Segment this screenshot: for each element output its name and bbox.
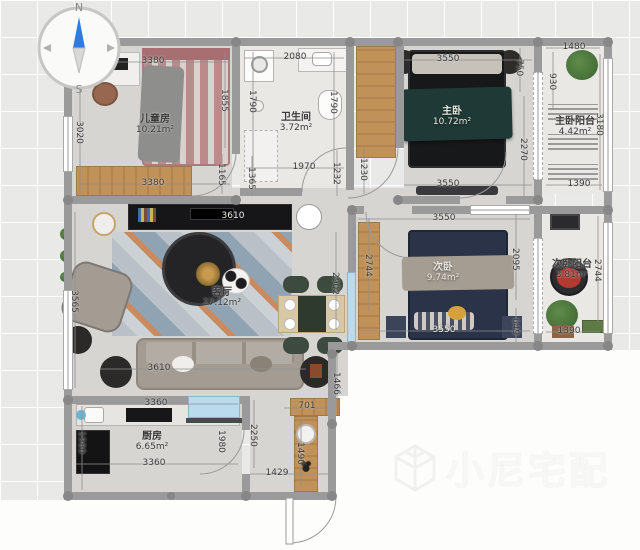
canvas-blank-bottom [0,500,640,550]
wall-kitchen-right-b[interactable] [242,474,250,500]
room-label-second-balcony: 次卧阳台 3.81m² [542,255,602,280]
sofa-cushions [146,342,294,364]
dim-master-nook: 750 [514,48,524,88]
dim-second-gap: 649 [510,307,520,347]
table-runner [298,296,326,332]
dim-children-right: 1855 [219,80,229,120]
dim-kitchen-right: 1980 [216,421,226,461]
room-label-living: 客厅 27.12m² [182,283,262,308]
room-label-master: 主卧 10.72m² [412,102,492,127]
dim-master-bottom: 3550 [429,179,467,190]
dim-entry-width: 1429 [258,468,296,479]
dim-kitchen-bottom: 3360 [135,458,173,469]
dim-second-top: 3550 [425,213,463,224]
dim-bath-bottom: 1970 [285,162,323,173]
dim-children-bottom: 3380 [134,178,172,189]
dim-shoe-top: 701 [288,401,326,412]
compass-north-label: N [34,1,124,14]
glass-door-track [186,418,244,423]
dim-children-left: 3020 [74,112,84,152]
wall-bottom-left[interactable] [64,492,336,500]
room-label-bathroom: 卫生间 3.72m² [256,108,336,133]
balcony-plant[interactable] [566,50,598,80]
drying-rack[interactable] [548,164,598,180]
sink [312,52,332,66]
watermark: 小尼宅配 [392,440,610,495]
picture-frame[interactable] [550,214,580,230]
floorplan-canvas[interactable]: 小尼宅配 [0,0,640,550]
dim-hall-bottom: 1466 [331,363,341,403]
dim-mbalcony-left: 930 [547,62,557,102]
wall-children-bottom[interactable] [64,196,240,204]
dining-chair[interactable] [283,337,309,354]
dim-shoe-side: 1490 [295,433,305,473]
plate [284,318,296,330]
throw-pillow [448,306,466,320]
dim-dining-side: 2902 [330,263,340,303]
side-table-tray [310,364,322,378]
compass-widget[interactable]: N S [34,3,124,93]
dim-children-door: 1165 [216,154,226,194]
wall-bottom-right[interactable] [328,342,612,350]
dim-hall-left: 1365 [246,158,256,198]
dim-second-bottom: 3550 [425,325,463,336]
wall-top[interactable] [64,38,612,46]
plate [328,318,340,330]
dining-chair[interactable] [283,276,309,293]
tv-books [138,208,156,222]
dim-tv-wall: 3610 [214,211,252,222]
dim-master-right: 2270 [518,129,528,169]
watermark-cube-icon [392,443,438,493]
washer-drum [251,56,268,73]
room-label-second: 次卧 9.74m² [403,258,483,283]
cooktop [126,408,172,422]
plate [284,299,296,311]
dim-hall-right: 1232 [331,153,341,193]
dim-mbalcony-top: 1480 [555,42,593,53]
dim-second-left: 2744 [363,245,373,285]
compass-dial [34,3,124,93]
wall-master-left[interactable] [396,38,404,148]
glass-partition[interactable] [347,272,356,342]
compass-south-label: S [34,83,124,96]
room-label-kitchen: 厨房 6.65m² [112,427,192,452]
side-table[interactable] [100,356,132,388]
wall-children-bath[interactable] [232,38,240,154]
dim-second-right: 2095 [510,239,520,279]
speaker[interactable] [296,204,322,230]
watermark-text: 小尼宅配 [446,440,610,495]
dim-living-left: 3565 [69,281,79,321]
window[interactable] [63,116,73,172]
wall-left[interactable] [64,38,72,500]
dim-mbalcony-bottom: 1390 [560,179,598,190]
dim-master-top: 3550 [429,54,467,65]
kitchen-glass-door[interactable] [188,396,240,418]
dim-master-door: 1230 [358,149,368,189]
dim-entry-height: 2250 [248,415,258,455]
dim-kitchen-top: 3360 [137,398,175,409]
sink-bowl [76,410,86,420]
window-second-top[interactable] [470,205,530,215]
hall-wardrobe[interactable] [356,46,396,158]
sliding-door-master-balcony[interactable] [533,72,543,180]
dim-bath-top: 2080 [276,52,314,63]
sliding-door-second-balcony[interactable] [533,238,543,334]
wall-master-bottom-a[interactable] [396,196,460,204]
window[interactable] [603,222,613,334]
room-label-children: 儿童房 10.21m² [115,110,195,135]
dim-sofa: 3610 [140,363,178,374]
dim-kitchen-left: 1980 [76,422,86,462]
dim-children-top: 3380 [134,56,172,67]
wall-bath-right[interactable] [346,38,354,190]
room-label-master-balcony: 主卧阳台 4.42m² [545,112,605,137]
sofa-pillow [250,356,272,372]
dim-sbalcony-bottom: 1390 [550,326,588,337]
kitchen-sink [84,407,104,423]
nightstand[interactable] [386,316,406,338]
